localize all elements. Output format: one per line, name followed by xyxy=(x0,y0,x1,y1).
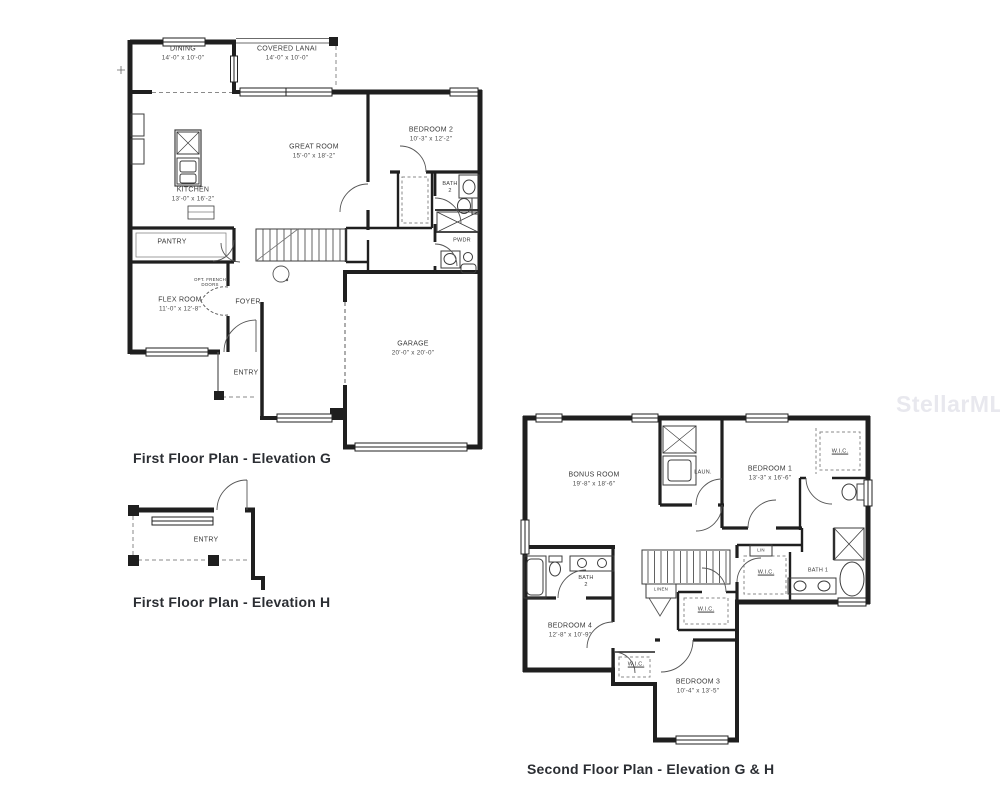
room-label-kitchen: KITCHEN 13'-0" x 16'-2" xyxy=(172,187,214,204)
porch-post xyxy=(208,555,219,566)
room-label-powder: PWDR xyxy=(453,238,471,245)
room-label-entry-g: ENTRY xyxy=(234,370,259,379)
first-floor-h-window xyxy=(152,517,213,525)
range-icon xyxy=(131,139,144,164)
room-label-pantry: PANTRY xyxy=(157,239,186,248)
opt-cabinet-icon xyxy=(188,206,214,219)
stellar-mls-watermark: StellarMLS xyxy=(896,391,1000,418)
caption-first-floor-h: First Floor Plan - Elevation H xyxy=(133,594,330,610)
room-label-foyer: FOYER xyxy=(235,299,260,308)
room-label-flex-room: FLEX ROOM 11'-0" x 12'-8" xyxy=(158,297,201,314)
room-label-wic-hall: W.I.C. xyxy=(758,570,774,577)
room-label-garage: GARAGE 20'-0" x 20'-0" xyxy=(392,341,434,358)
front-door-swing xyxy=(217,480,247,510)
caption-first-floor-g: First Floor Plan - Elevation G xyxy=(133,450,331,466)
entry-post xyxy=(214,391,224,400)
room-label-bedroom-3: BEDROOM 3 10'-4" x 13'-5" xyxy=(676,679,720,696)
double-vanity-icon xyxy=(788,578,836,594)
room-label-dining: DINING 14'-0" x 10'-0" xyxy=(162,46,204,63)
survey-tick-icon xyxy=(117,66,125,74)
room-label-laundry: LAUN. xyxy=(694,470,711,477)
room-label-great-room: GREAT ROOM 15'-0" x 18'-2" xyxy=(289,144,339,161)
tub-icon xyxy=(840,562,864,596)
room-label-bedroom-2: BEDROOM 2 10'-3" x 12'-2" xyxy=(409,127,453,144)
column-dot xyxy=(286,279,288,281)
room-label-bath-2: BATH 2 xyxy=(442,181,457,195)
laundry-fixtures xyxy=(663,426,696,485)
lanai-corner-post xyxy=(329,37,338,46)
refrigerator-icon xyxy=(131,114,144,136)
wc-toilet-icon xyxy=(857,484,864,500)
room-label-wic-bedroom-1: W.I.C. xyxy=(832,449,848,456)
room-label-wic-bedroom-3: W.I.C. xyxy=(628,662,644,669)
room-label-covered-lanai: COVERED LANAI 14'-0" x 10'-0" xyxy=(257,46,317,63)
porch-post xyxy=(128,555,139,566)
stairs-second-floor xyxy=(642,550,730,584)
first-floor-g-doors xyxy=(201,146,461,352)
room-label-entry-h: ENTRY xyxy=(194,537,219,546)
porch-post xyxy=(128,505,139,516)
caption-second-floor: Second Floor Plan - Elevation G & H xyxy=(527,761,774,777)
floor-plan-line-art xyxy=(0,0,1000,800)
room-label-bedroom-1: BEDROOM 1 13'-3" x 16'-6" xyxy=(748,466,792,483)
room-label-wic-center: W.I.C. xyxy=(698,607,714,614)
bath1-fixtures xyxy=(750,484,864,596)
bath2-second-fixtures xyxy=(524,556,614,598)
room-label-bath-1: BATH 1 xyxy=(808,568,828,575)
room-label-opt-french-doors: OPT. FRENCH DOORS xyxy=(194,278,226,288)
double-vanity-icon xyxy=(570,556,614,571)
vanity-icon xyxy=(459,175,479,198)
stairs-first-floor xyxy=(256,229,346,261)
room-label-bath-2-second: BATH 2 xyxy=(578,575,593,589)
floor-plan-sheet: DINING 14'-0" x 10'-0" COVERED LANAI 14'… xyxy=(0,0,1000,800)
powder-toilet-icon xyxy=(464,253,473,262)
room-label-lin: LIN xyxy=(757,549,765,554)
toilet-icon xyxy=(549,556,562,562)
room-label-bedroom-4: BEDROOM 4 12'-8" x 10'-9" xyxy=(548,623,592,640)
room-label-bonus-room: BONUS ROOM 19'-8" x 18'-6" xyxy=(568,472,619,489)
room-label-linen: LINEN xyxy=(654,588,668,593)
